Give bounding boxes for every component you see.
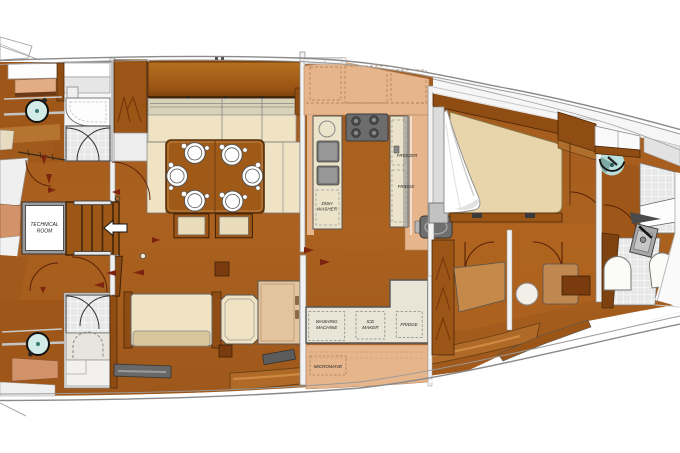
svg-text:TECHNICAL: TECHNICAL (30, 222, 59, 228)
svg-text:ROOM: ROOM (37, 229, 53, 235)
svg-text:ICE: ICE (367, 319, 376, 324)
svg-text:WASHER: WASHER (317, 207, 338, 212)
svg-text:MAKER: MAKER (362, 325, 379, 330)
svg-text:MACHINE: MACHINE (316, 325, 338, 330)
svg-text:FREEZER: FREEZER (397, 153, 418, 158)
svg-text:MICROWAVE: MICROWAVE (314, 364, 343, 369)
svg-text:WASHING: WASHING (316, 319, 338, 324)
svg-text:DISH: DISH (322, 201, 334, 206)
svg-text:FRIDGE: FRIDGE (398, 184, 415, 189)
svg-text:FRIDGE: FRIDGE (400, 322, 418, 327)
